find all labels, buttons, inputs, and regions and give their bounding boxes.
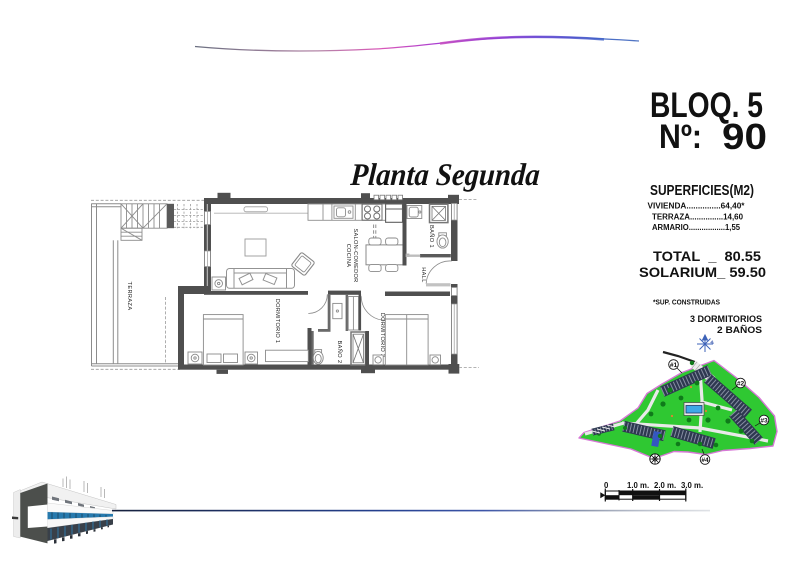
svg-text:VIVIENDA...............64,40*: VIVIENDA...............64,40* — [648, 201, 746, 211]
svg-text:COCINA: COCINA — [345, 244, 351, 268]
svg-text:#4: #4 — [701, 457, 709, 464]
svg-text:TERRAZA...............14,60: TERRAZA...............14,60 — [652, 212, 743, 222]
svg-text:Nº:: Nº: — [659, 118, 702, 156]
svg-text:BAÑO 1: BAÑO 1 — [428, 225, 435, 248]
svg-text:2.0 m.: 2.0 m. — [654, 481, 676, 490]
svg-text:#3: #3 — [760, 418, 768, 425]
svg-text:1.0 m.: 1.0 m. — [627, 481, 649, 490]
svg-text:#2: #2 — [737, 381, 745, 388]
svg-text:2 BAÑOS: 2 BAÑOS — [717, 325, 763, 336]
svg-text:SOLARIUM_ 59.50: SOLARIUM_ 59.50 — [639, 264, 766, 280]
svg-text:SALON-COMEDOR: SALON-COMEDOR — [352, 229, 358, 283]
svg-text:TERRAZA: TERRAZA — [126, 282, 132, 311]
svg-text:*SUP. CONSTRUIDAS: *SUP. CONSTRUIDAS — [653, 298, 720, 307]
svg-text:HALL: HALL — [420, 267, 426, 283]
svg-text:90: 90 — [722, 116, 767, 157]
svg-text:DORMITORIO 1: DORMITORIO 1 — [274, 299, 280, 344]
svg-text:3.0 m.: 3.0 m. — [681, 481, 703, 490]
svg-text:DORMITORIO 2: DORMITORIO 2 — [379, 313, 385, 358]
svg-text:3 DORMITORIOS: 3 DORMITORIOS — [690, 314, 763, 325]
svg-text:SUPERFICIES(M2): SUPERFICIES(M2) — [650, 183, 754, 199]
svg-text:ARMARIO.................1,55: ARMARIO.................1,55 — [652, 222, 740, 232]
svg-text:TOTAL _ 80.55: TOTAL _ 80.55 — [653, 248, 761, 264]
svg-text:Planta Segunda: Planta Segunda — [349, 157, 541, 192]
svg-text:BAÑO 2: BAÑO 2 — [336, 341, 343, 364]
svg-text:#1: #1 — [670, 362, 678, 369]
